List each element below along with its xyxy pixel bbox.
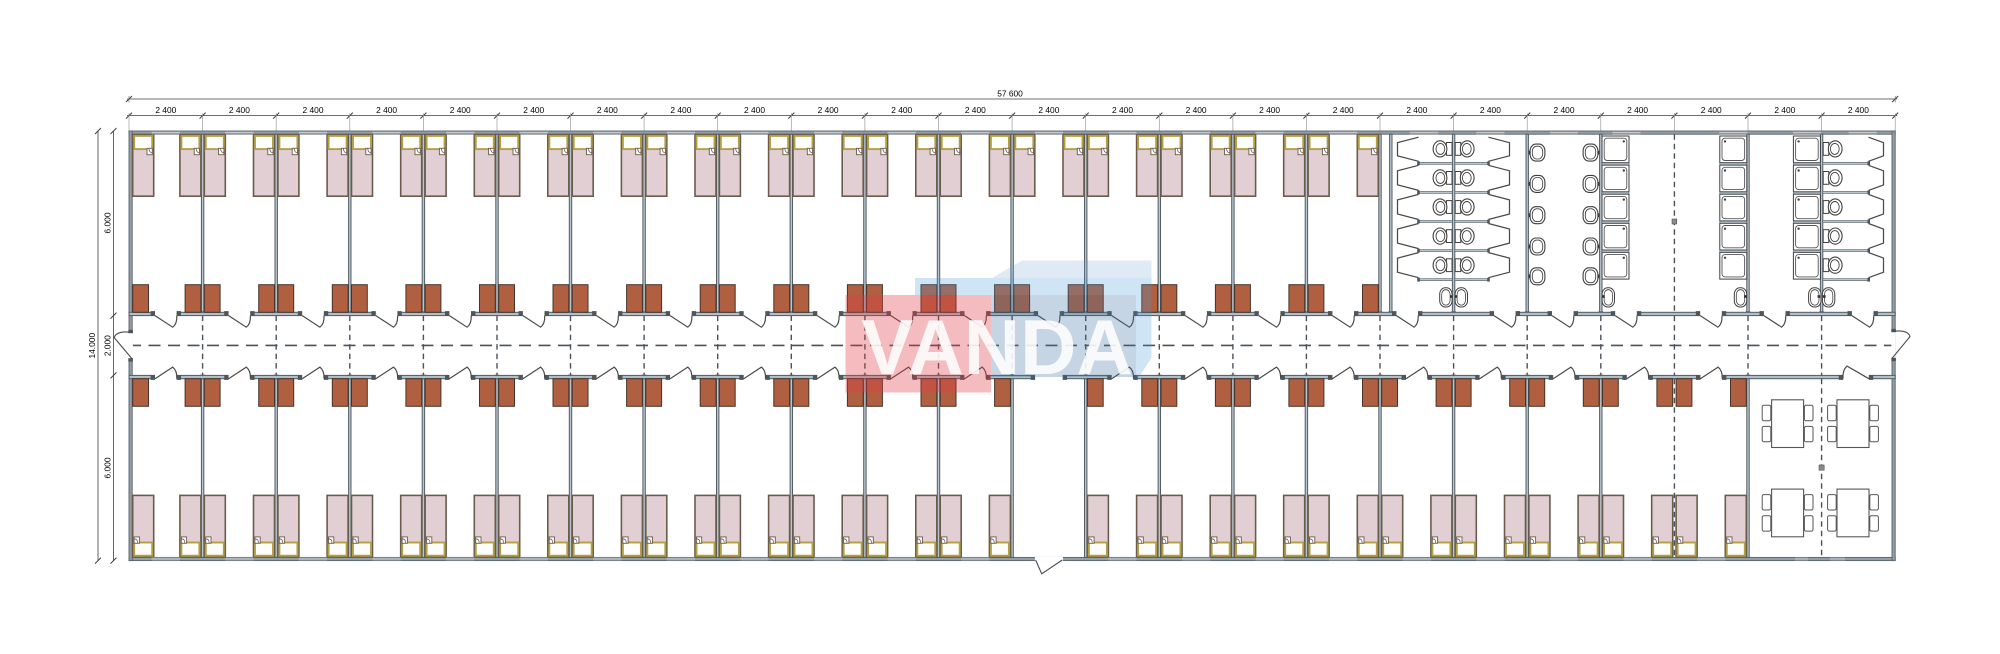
svg-text:14.000: 14.000 — [87, 333, 97, 359]
svg-text:2 400: 2 400 — [1186, 105, 1207, 115]
svg-text:2 400: 2 400 — [1627, 105, 1648, 115]
svg-text:2 400: 2 400 — [1848, 105, 1869, 115]
svg-text:2 400: 2 400 — [1112, 105, 1133, 115]
svg-text:2 400: 2 400 — [155, 105, 176, 115]
svg-text:2 400: 2 400 — [376, 105, 397, 115]
svg-text:6.000: 6.000 — [103, 212, 113, 233]
svg-text:VANDA: VANDA — [861, 303, 1133, 391]
svg-text:2 400: 2 400 — [1333, 105, 1354, 115]
svg-text:2 400: 2 400 — [229, 105, 250, 115]
svg-text:2 400: 2 400 — [744, 105, 765, 115]
svg-text:2 400: 2 400 — [670, 105, 691, 115]
svg-text:2 400: 2 400 — [965, 105, 986, 115]
svg-text:2 400: 2 400 — [1480, 105, 1501, 115]
svg-text:2 400: 2 400 — [1554, 105, 1575, 115]
svg-text:2 400: 2 400 — [597, 105, 618, 115]
svg-text:2 400: 2 400 — [818, 105, 839, 115]
svg-text:2 400: 2 400 — [450, 105, 471, 115]
svg-text:2.000: 2.000 — [103, 335, 113, 356]
svg-text:2 400: 2 400 — [523, 105, 544, 115]
svg-text:2 400: 2 400 — [1259, 105, 1280, 115]
svg-text:2 400: 2 400 — [1406, 105, 1427, 115]
svg-text:2 400: 2 400 — [303, 105, 324, 115]
svg-text:2 400: 2 400 — [1774, 105, 1795, 115]
svg-text:6.000: 6.000 — [103, 457, 113, 478]
svg-text:2 400: 2 400 — [1701, 105, 1722, 115]
svg-text:57 600: 57 600 — [997, 89, 1023, 99]
svg-text:2 400: 2 400 — [1038, 105, 1059, 115]
svg-text:2 400: 2 400 — [891, 105, 912, 115]
